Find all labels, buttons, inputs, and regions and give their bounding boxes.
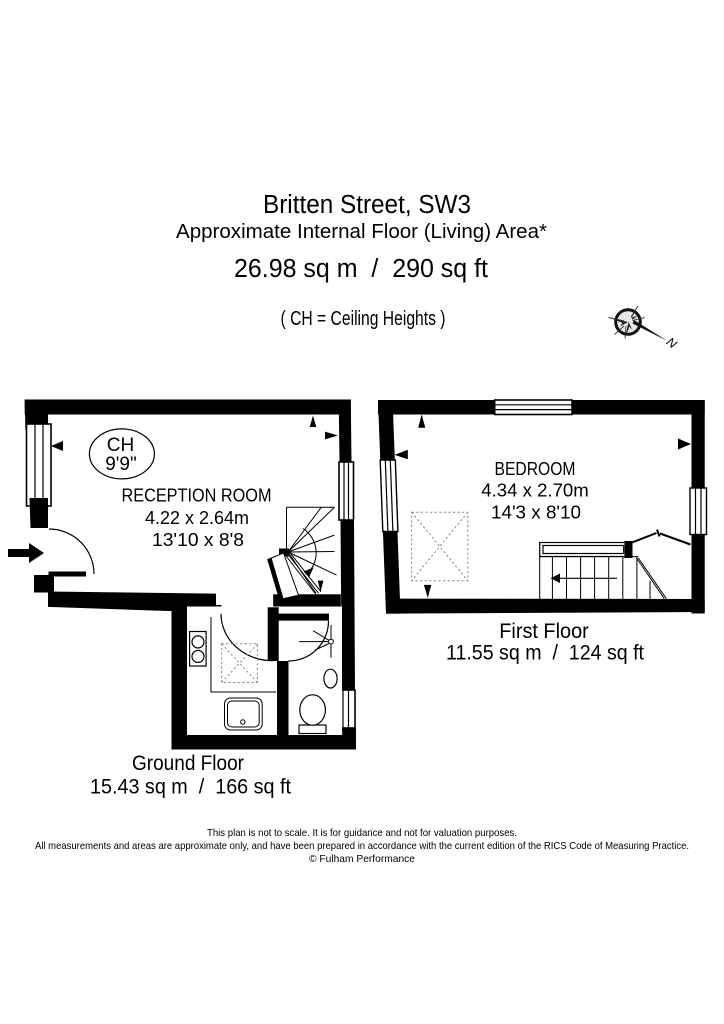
svg-text:4.22 x 2.64m: 4.22 x 2.64m xyxy=(145,508,249,528)
svg-text:BEDROOM: BEDROOM xyxy=(495,459,576,479)
svg-text:11.55 sq m / 124 sq ft: 11.55 sq m / 124 sq ft xyxy=(446,642,644,665)
svg-text:CH: CH xyxy=(107,435,134,456)
svg-text:First Floor: First Floor xyxy=(499,620,589,643)
svg-text:Approximate Internal Floor (Li: Approximate Internal Floor (Living) Area… xyxy=(176,221,547,243)
svg-text:9'9": 9'9" xyxy=(105,454,137,475)
svg-text:All measurements and areas are: All measurements and areas are approxima… xyxy=(35,840,689,852)
svg-text:Ground Floor: Ground Floor xyxy=(132,752,244,775)
svg-text:4.34 x 2.70m: 4.34 x 2.70m xyxy=(481,481,589,501)
svg-text:14'3 x 8'10: 14'3 x 8'10 xyxy=(491,503,581,523)
svg-text:This plan is not to scale. It: This plan is not to scale. It is for gui… xyxy=(207,827,517,839)
svg-text:Britten Street, SW3: Britten Street, SW3 xyxy=(263,191,471,219)
svg-text:26.98 sq m / 290 sq ft: 26.98 sq m / 290 sq ft xyxy=(234,255,488,283)
svg-text:( CH = Ceiling Heights ): ( CH = Ceiling Heights ) xyxy=(281,308,446,330)
svg-text:© Fulham Performance: © Fulham Performance xyxy=(309,853,415,865)
svg-text:13'10 x 8'8: 13'10 x 8'8 xyxy=(152,530,244,550)
svg-text:RECEPTION ROOM: RECEPTION ROOM xyxy=(122,486,272,506)
svg-text:15.43 sq m / 166 sq ft: 15.43 sq m / 166 sq ft xyxy=(90,776,291,799)
